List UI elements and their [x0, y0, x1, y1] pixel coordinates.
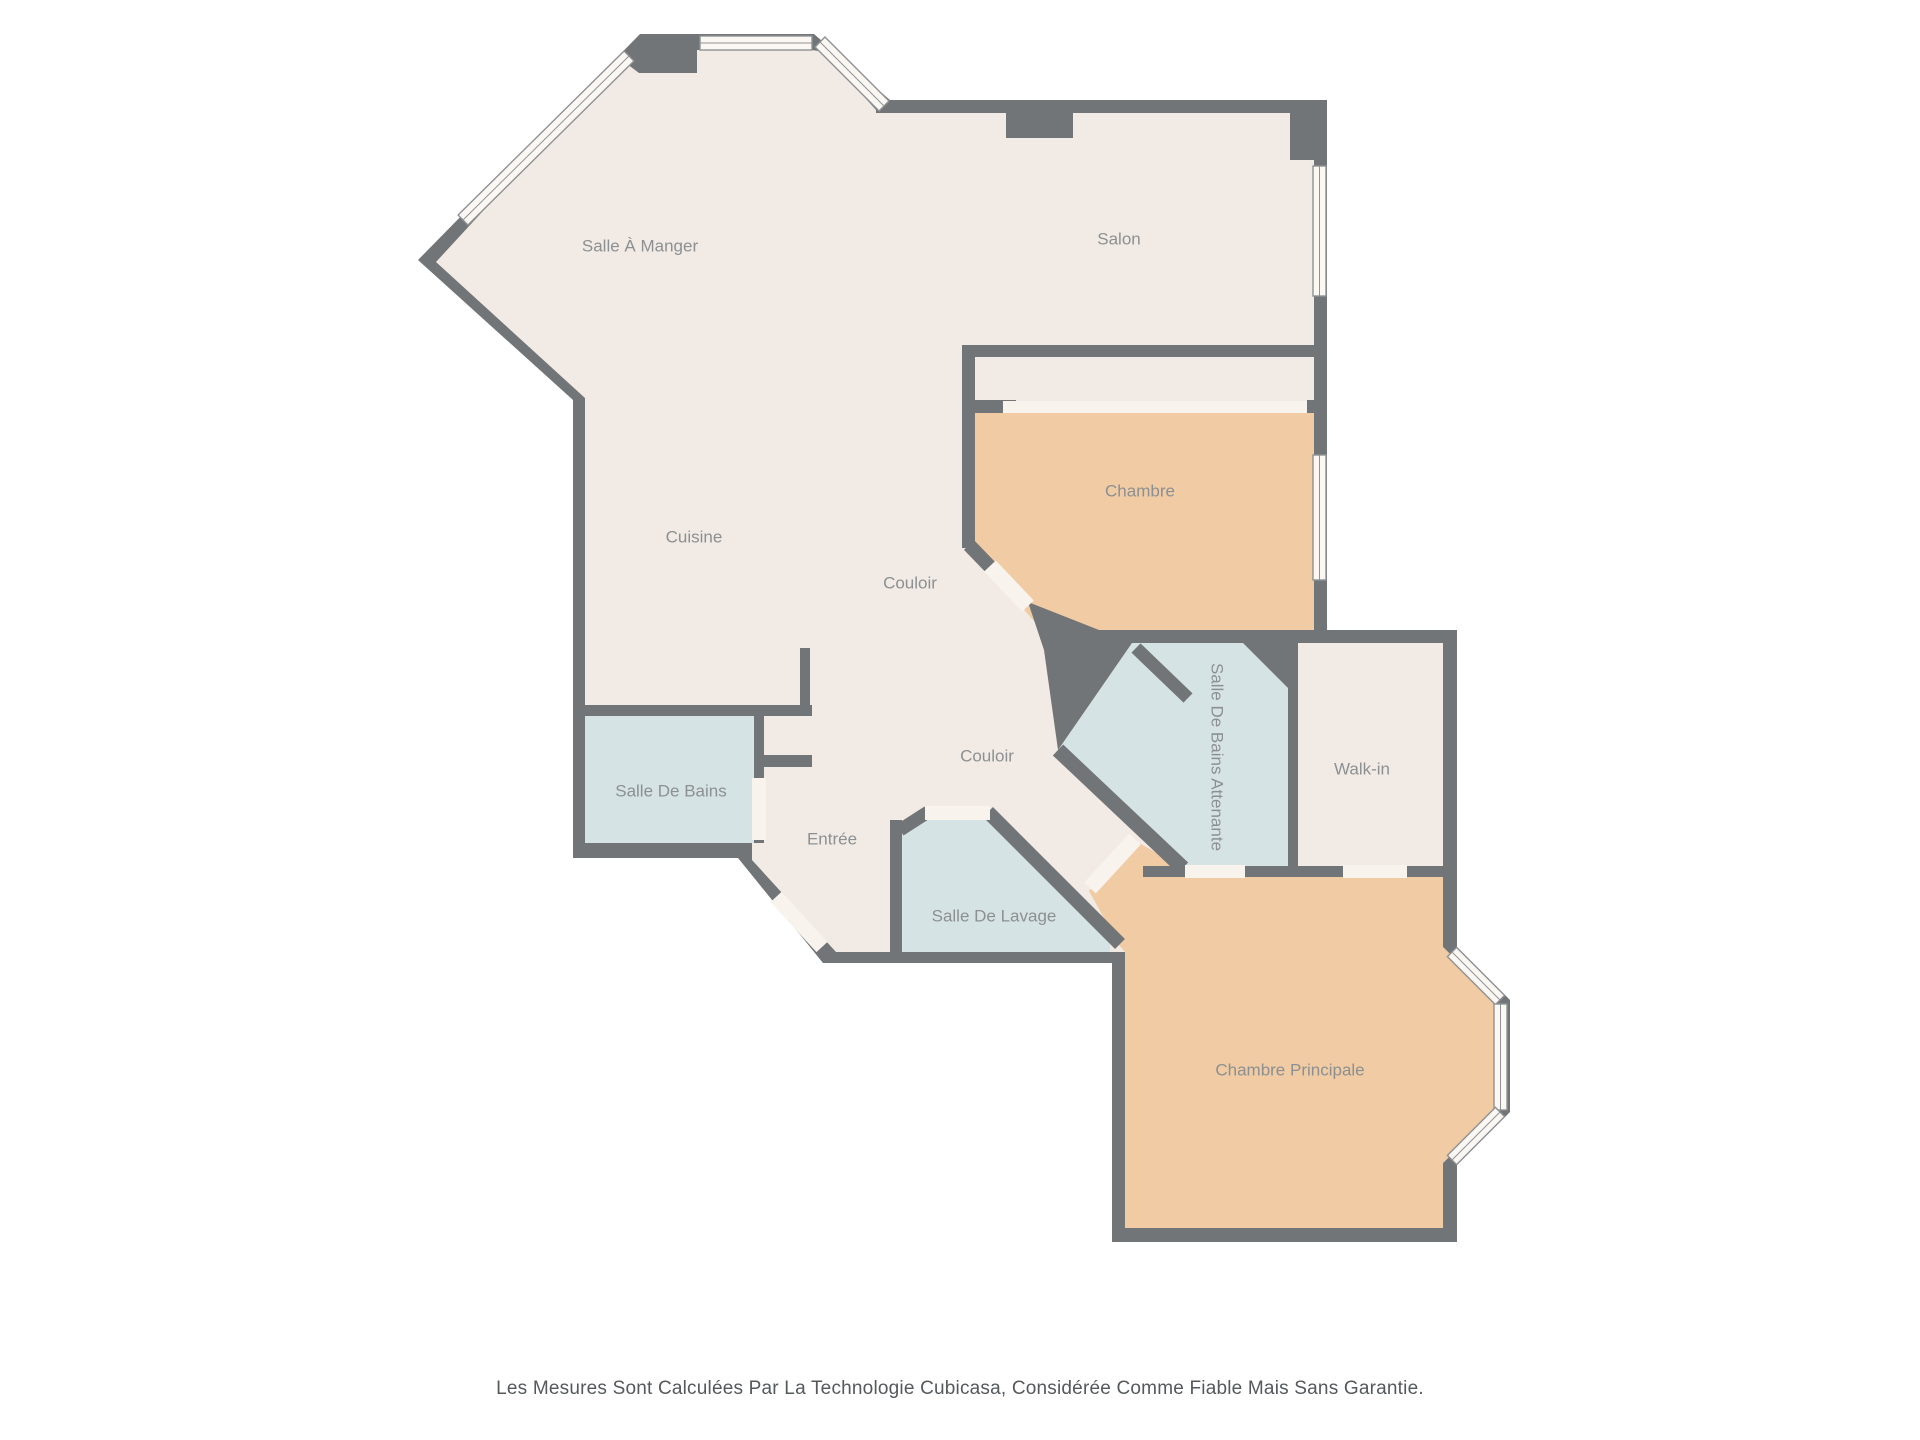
room-label-couloir-2: Couloir: [960, 746, 1014, 765]
door-chambre-closet: [1003, 401, 1307, 413]
room-label-salle-de-lavage: Salle De Lavage: [932, 906, 1057, 925]
door-walkin: [1343, 865, 1407, 878]
wall-kitchen-stub-horizontal: [764, 755, 812, 767]
room-label-chambre-principale: Chambre Principale: [1215, 1060, 1364, 1079]
wall-kitchen-stub-vertical: [800, 648, 810, 706]
room-label-entree: Entrée: [807, 829, 857, 848]
wall-salon-strip-wall: [962, 345, 1314, 357]
room-label-salon: Salon: [1097, 229, 1140, 248]
room-label-walk-in: Walk-in: [1334, 759, 1390, 778]
wall-closet-stub-right: [1307, 400, 1327, 413]
room-salle-de-bains: [585, 716, 754, 843]
wall-sdba-walkin-divider: [1288, 643, 1298, 867]
page: ChambreChambre PrincipaleSalle De BainsS…: [0, 0, 1920, 1440]
room-label-couloir-1: Couloir: [883, 573, 937, 592]
disclaimer-text: Les Mesures Sont Calculées Par La Techno…: [0, 1378, 1920, 1400]
wall-strip-left-wall: [962, 345, 975, 548]
wall-cuisine-bottom-wall: [573, 705, 812, 716]
door-sdb: [752, 778, 766, 840]
wall-chambre-bottom-wall: [1053, 630, 1314, 643]
wall-lavage-left-wall: [890, 820, 902, 952]
floor-plan-svg: ChambreChambre PrincipaleSalle De BainsS…: [0, 0, 1920, 1440]
door-lavage: [925, 806, 990, 820]
wall-salon-notch: [1006, 112, 1073, 138]
wall-salon-corner-column: [1290, 113, 1327, 160]
room-chambre-principale: [1089, 840, 1494, 1228]
room-label-cuisine: Cuisine: [666, 527, 723, 546]
room-label-salle-a-manger: Salle À Manger: [582, 236, 699, 255]
room-label-salle-de-bains-attenante: Salle De Bains Attenante: [1208, 663, 1227, 851]
door-sdba: [1185, 865, 1245, 878]
room-label-chambre: Chambre: [1105, 481, 1175, 500]
floor-plan-container: ChambreChambre PrincipaleSalle De BainsS…: [0, 0, 1920, 1440]
room-label-salle-de-bains: Salle De Bains: [615, 781, 727, 800]
